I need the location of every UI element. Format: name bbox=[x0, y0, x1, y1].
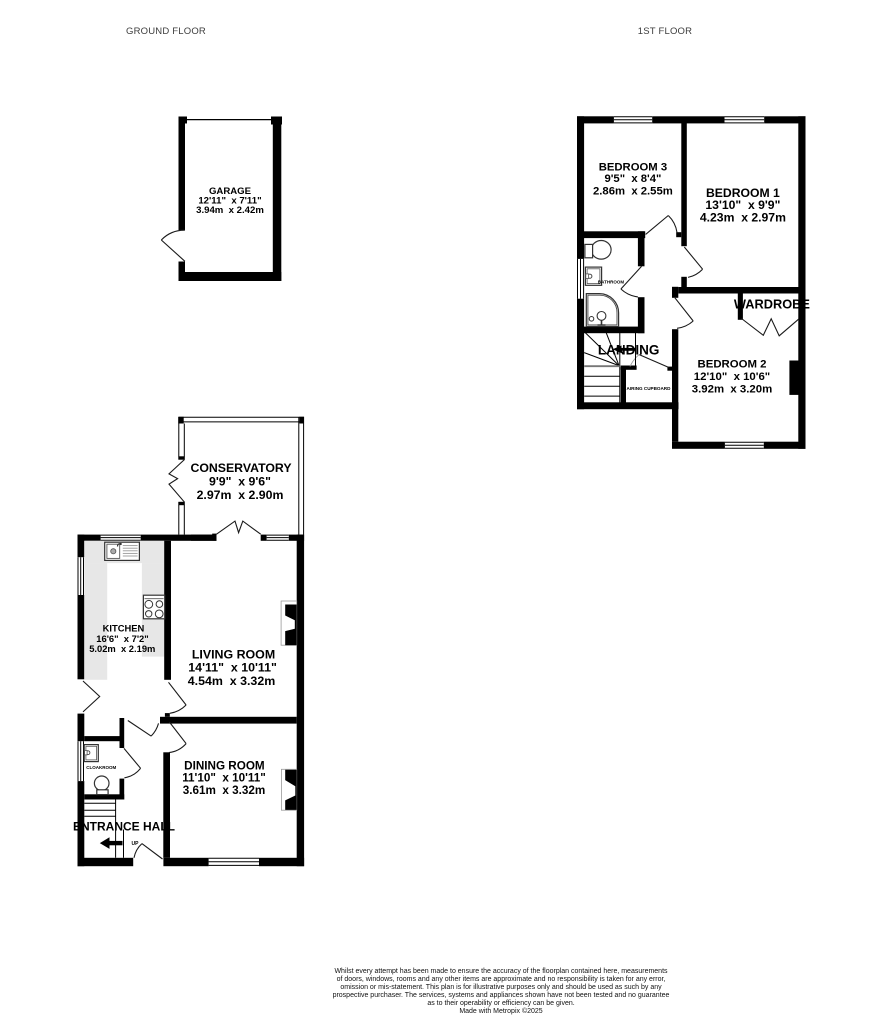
svg-text:LIVING ROOM: LIVING ROOM bbox=[192, 648, 275, 662]
svg-text:Whilst every attempt has been: Whilst every attempt has been made to en… bbox=[334, 968, 668, 975]
svg-text:LANDING: LANDING bbox=[598, 343, 660, 358]
svg-text:omission or mis-statement. Thi: omission or mis-statement. This plan is … bbox=[340, 984, 662, 991]
svg-text:3.61m x 3.32m: 3.61m x 3.32m bbox=[183, 784, 266, 797]
svg-text:2.97m x 2.90m: 2.97m x 2.90m bbox=[197, 488, 284, 502]
svg-text:ENTRANCE HALL: ENTRANCE HALL bbox=[73, 819, 175, 833]
svg-text:BEDROOM 2: BEDROOM 2 bbox=[698, 358, 767, 370]
svg-text:BEDROOM 3: BEDROOM 3 bbox=[599, 161, 667, 173]
svg-text:CONSERVATORY: CONSERVATORY bbox=[190, 461, 291, 475]
svg-text:4.54m x 3.32m: 4.54m x 3.32m bbox=[188, 674, 276, 688]
svg-text:UP: UP bbox=[132, 841, 140, 847]
svg-text:3.94m x 2.42m: 3.94m x 2.42m bbox=[196, 205, 264, 216]
svg-text:of doors, windows, rooms and a: of doors, windows, rooms and any other i… bbox=[337, 976, 666, 983]
svg-text:12'10" x 10'6": 12'10" x 10'6" bbox=[694, 371, 770, 383]
svg-text:11'10" x 10'11": 11'10" x 10'11" bbox=[182, 772, 266, 785]
svg-text:CLOAKROOM: CLOAKROOM bbox=[86, 765, 116, 770]
svg-text:prospective purchaser. The ser: prospective purchaser. The services, sys… bbox=[333, 992, 670, 999]
svg-text:9'5" x 8'4": 9'5" x 8'4" bbox=[604, 173, 661, 185]
svg-text:WARDROBE: WARDROBE bbox=[734, 297, 811, 312]
svg-text:5.02m x 2.19m: 5.02m x 2.19m bbox=[89, 643, 155, 654]
svg-text:1ST FLOOR: 1ST FLOOR bbox=[638, 26, 692, 37]
svg-text:GROUND FLOOR: GROUND FLOOR bbox=[126, 26, 206, 37]
svg-text:4.23m x 2.97m: 4.23m x 2.97m bbox=[700, 211, 786, 225]
svg-text:9'9" x 9'6": 9'9" x 9'6" bbox=[209, 475, 271, 489]
svg-text:Made with Metropix ©2025: Made with Metropix ©2025 bbox=[459, 1007, 542, 1015]
svg-text:as to their operability or eff: as to their operability or efficiency ca… bbox=[427, 1000, 574, 1007]
svg-text:BATHROOM: BATHROOM bbox=[598, 280, 624, 285]
svg-text:14'11" x 10'11": 14'11" x 10'11" bbox=[188, 661, 277, 675]
svg-text:2.86m x 2.55m: 2.86m x 2.55m bbox=[593, 185, 673, 197]
svg-text:AIRING CUPBOARD: AIRING CUPBOARD bbox=[627, 386, 672, 391]
svg-text:3.92m x 3.20m: 3.92m x 3.20m bbox=[692, 383, 772, 395]
svg-text:DINING ROOM: DINING ROOM bbox=[184, 760, 265, 773]
